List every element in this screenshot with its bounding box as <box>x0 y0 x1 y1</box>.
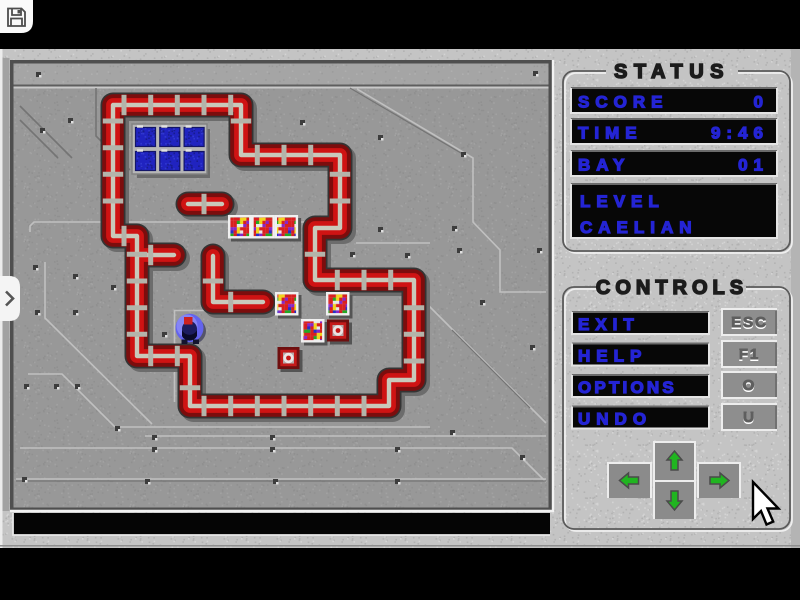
svg-text:0: 0 <box>754 93 769 112</box>
svg-text:OPTIONS: OPTIONS <box>578 378 677 397</box>
svg-text:STATUS: STATUS <box>614 61 730 83</box>
svg-text:ESC: ESC <box>731 314 768 331</box>
svg-text:EXIT: EXIT <box>578 315 640 334</box>
svg-text:CAELIAN: CAELIAN <box>580 218 698 237</box>
svg-text:UNDO: UNDO <box>578 410 652 429</box>
svg-text:O: O <box>743 377 757 394</box>
svg-text:TIME: TIME <box>578 124 643 143</box>
svg-text:BAY: BAY <box>578 156 630 175</box>
svg-text:CONTROLS: CONTROLS <box>596 277 748 299</box>
svg-text:9:46: 9:46 <box>711 124 769 143</box>
svg-text:HELP: HELP <box>578 347 647 366</box>
svg-text:F1: F1 <box>739 346 761 363</box>
svg-text:SCORE: SCORE <box>578 93 668 112</box>
svg-text:01: 01 <box>738 156 769 175</box>
svg-text:U: U <box>743 409 756 426</box>
svg-text:LEVEL: LEVEL <box>580 192 665 211</box>
